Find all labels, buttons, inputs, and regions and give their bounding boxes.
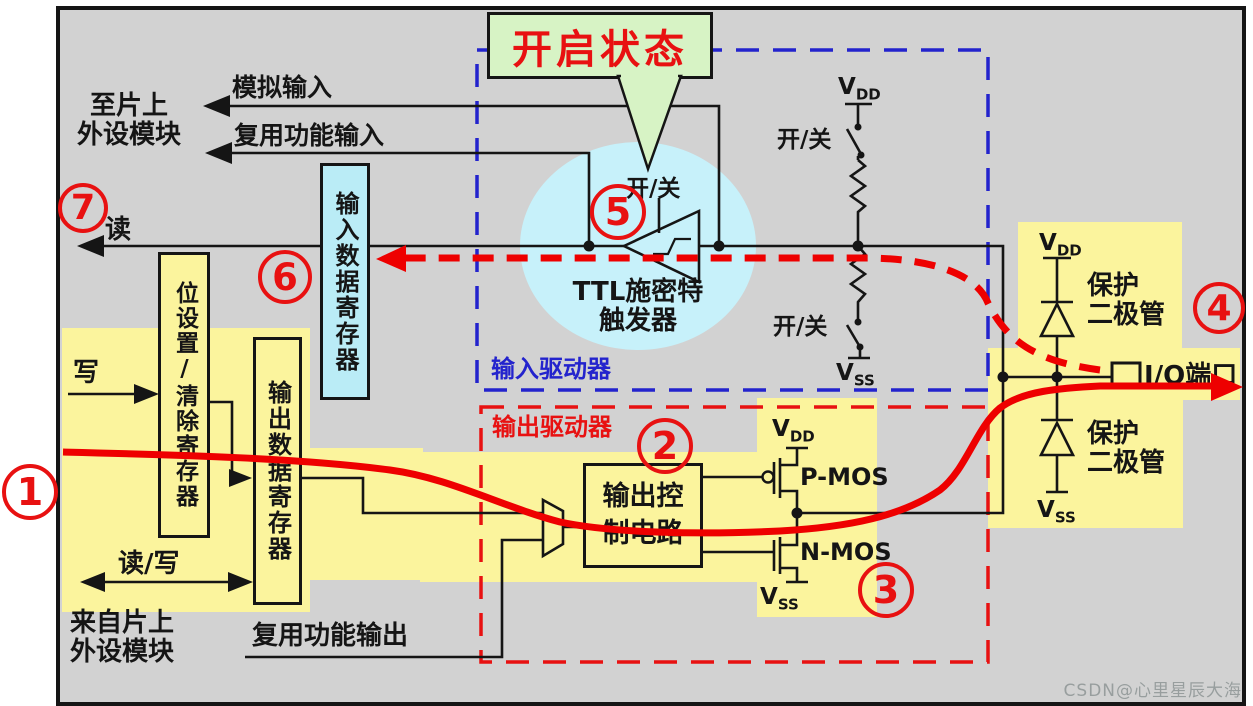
- analog-input-label: 模拟输入: [232, 74, 332, 102]
- to-onchip-line2: 外设模块: [66, 121, 192, 150]
- highlight-bus-area: [305, 448, 423, 580]
- marker-6: 6: [258, 250, 312, 304]
- schmitt-label-line2: 触发器: [555, 307, 721, 336]
- from-onchip-line2: 外设模块: [70, 638, 174, 667]
- io-port-label: I/O端口: [1144, 362, 1237, 391]
- af-input-label: 复用功能输入: [234, 122, 384, 150]
- af-output-label: 复用功能输出: [252, 622, 408, 651]
- vdd-pullup-label: VDD: [838, 74, 881, 104]
- output-data-register-box: 输出数据寄存器: [253, 337, 302, 605]
- schmitt-trigger-label: TTL施密特 触发器: [555, 278, 721, 335]
- nmos-label: N-MOS: [800, 539, 892, 565]
- marker-7: 7: [58, 183, 108, 233]
- vdd-pmos-label: VDD: [772, 416, 815, 446]
- marker-1: 1: [2, 464, 58, 520]
- from-onchip-label: 来自片上 外设模块: [70, 609, 174, 666]
- to-onchip-label: 至片上 外设模块: [66, 92, 192, 149]
- schmitt-label-line1: TTL施密特: [555, 278, 721, 307]
- write-label: 写: [73, 359, 99, 388]
- output-driver-label: 输出驱动器: [492, 414, 612, 440]
- vdd-diode-label: VDD: [1039, 230, 1082, 260]
- read-write-label: 读/写: [118, 550, 180, 579]
- lower-protect-line1: 保护: [1087, 420, 1165, 449]
- output-control-label-1: 输出控: [603, 479, 684, 515]
- pmos-label: P-MOS: [800, 464, 889, 490]
- gpio-port-structure-diagram: 输入数据寄存器 位设置/清除寄存器 输出数据寄存器 输出控 制电路 开启状态 至…: [0, 0, 1253, 706]
- lower-protect-line2: 二极管: [1087, 449, 1165, 478]
- bit-set-clear-register-box: 位设置/清除寄存器: [158, 252, 210, 538]
- marker-3: 3: [858, 562, 914, 618]
- vss-diode-label: VSS: [1037, 497, 1076, 527]
- lower-protection-diode-label: 保护 二极管: [1087, 420, 1165, 477]
- from-onchip-line1: 来自片上: [70, 609, 174, 638]
- input-data-register-box: 输入数据寄存器: [320, 163, 370, 400]
- input-driver-label: 输入驱动器: [491, 356, 611, 382]
- vss-pulldown-label: VSS: [836, 360, 875, 390]
- upper-protect-line2: 二极管: [1087, 301, 1165, 330]
- on-state-callout-label: 开启状态: [512, 17, 688, 75]
- read-label: 读: [105, 216, 131, 245]
- output-data-register-label: 输出数据寄存器: [266, 380, 290, 562]
- marker-4: 4: [1193, 282, 1245, 334]
- upper-protect-line1: 保护: [1087, 272, 1165, 301]
- output-control-box: 输出控 制电路: [583, 463, 703, 568]
- to-onchip-line1: 至片上: [66, 92, 192, 121]
- input-data-register-label: 输入数据寄存器: [333, 191, 357, 373]
- on-state-callout: 开启状态: [487, 12, 713, 79]
- bit-set-clear-register-label: 位设置/清除寄存器: [173, 281, 196, 509]
- csdn-watermark: CSDN@心里星辰大海: [1052, 676, 1242, 701]
- marker-2: 2: [637, 418, 693, 474]
- marker-5: 5: [590, 184, 646, 240]
- upper-protection-diode-label: 保护 二极管: [1087, 272, 1165, 329]
- vss-nmos-label: VSS: [760, 584, 799, 614]
- pulldown-onoff-label: 开/关: [773, 307, 827, 341]
- pullup-onoff-label: 开/关: [777, 120, 831, 154]
- output-control-label-2: 制电路: [603, 516, 684, 552]
